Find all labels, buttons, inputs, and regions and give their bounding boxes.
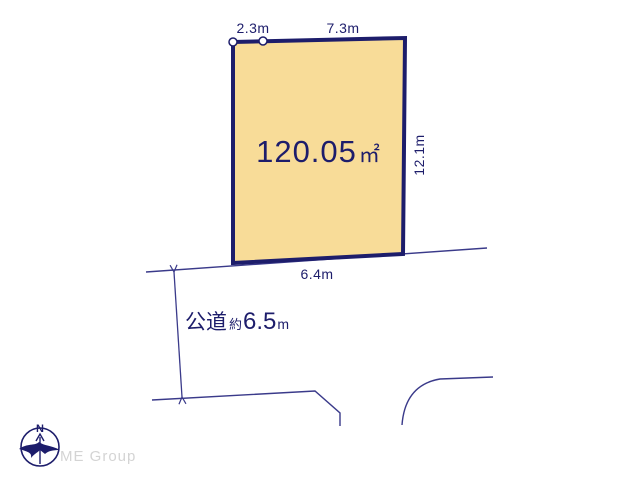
road-approx-label: 約 [229, 314, 242, 333]
company-logo-text: ME Group [60, 448, 136, 465]
boundary-point-marker [259, 37, 267, 45]
dim-label-top-left: 2.3m [236, 20, 269, 36]
company-logo: N [14, 420, 64, 470]
area-label: 120.05 ㎡ [256, 134, 380, 170]
road-edge-lower-line [152, 391, 340, 426]
north-label: N [36, 423, 44, 435]
area-unit: ㎡ [359, 139, 380, 169]
road-type-label: 公道 [185, 306, 227, 336]
dim-label-top-right: 7.3m [326, 20, 359, 36]
plot-diagram-page: 2.3m 7.3m 12.1m 6.4m 120.05 ㎡ 公道 約 6.5 m… [0, 0, 640, 480]
road-width-dimension-arrow [174, 272, 182, 397]
area-value: 120.05 [256, 134, 357, 170]
road-width-label: 公道 約 6.5 m [185, 306, 289, 336]
dim-label-right: 12.1m [411, 134, 427, 175]
road-curve-line [402, 377, 493, 425]
road-width-value: 6.5 [243, 308, 276, 336]
dim-label-bottom: 6.4m [300, 266, 333, 282]
plot-diagram-svg [0, 0, 640, 480]
boundary-point-marker [229, 38, 237, 46]
compass-north-icon: N [14, 420, 64, 470]
road-width-unit: m [277, 316, 289, 332]
